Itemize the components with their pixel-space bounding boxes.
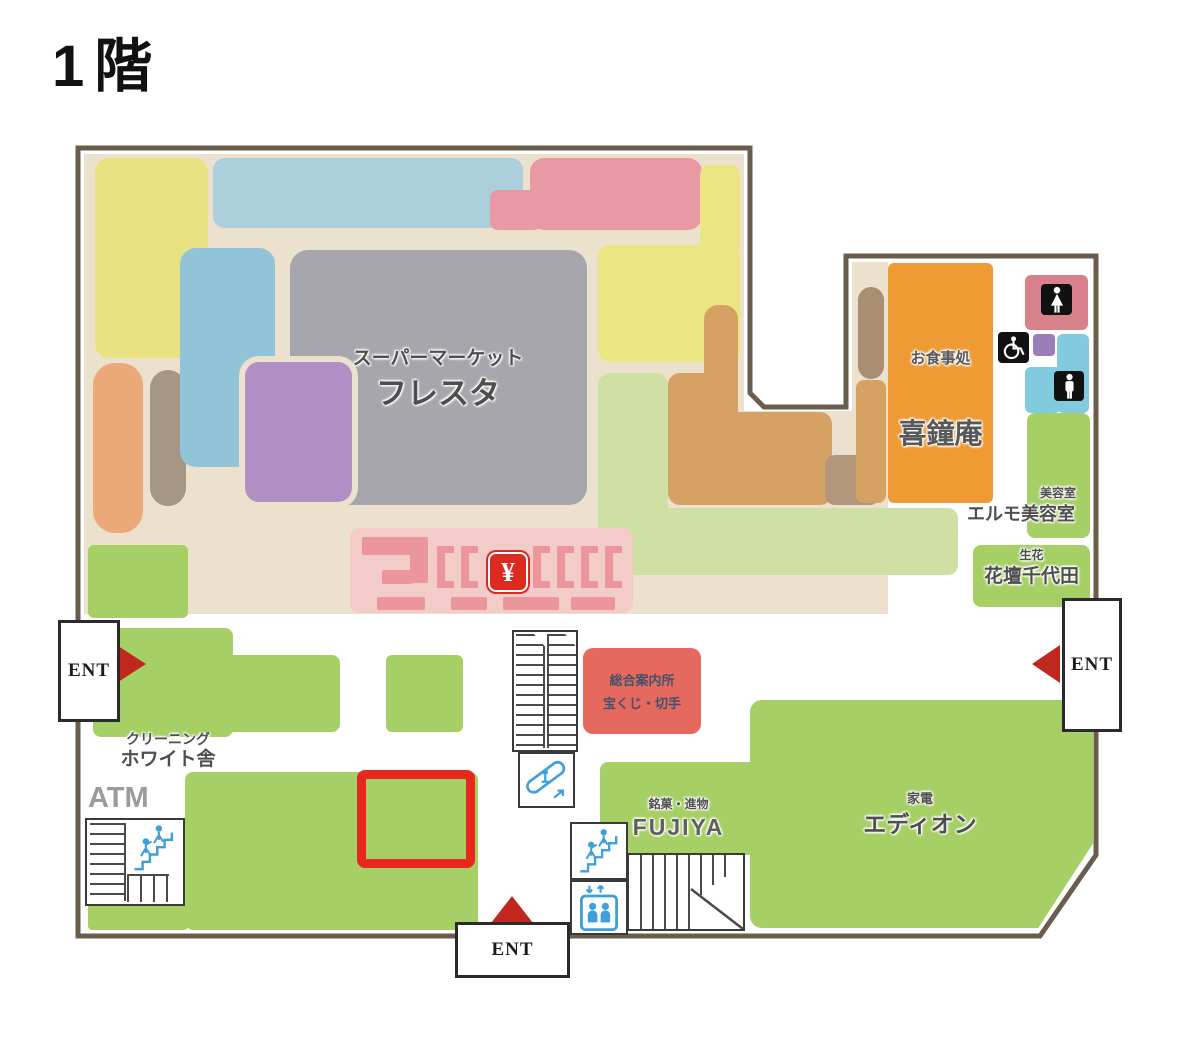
atm-label: ATM bbox=[88, 782, 198, 815]
beauty-salon-name-label: エルモ美容室 bbox=[948, 504, 1094, 525]
wheelchair-accessible-icon bbox=[998, 332, 1029, 363]
facility-block bbox=[1033, 334, 1055, 356]
staircase-icon bbox=[85, 818, 185, 906]
register-shape bbox=[605, 546, 622, 588]
supermarket-name-label: フレスタ bbox=[318, 376, 558, 412]
register-shape bbox=[461, 546, 478, 588]
florist-category-label: 生花 bbox=[973, 549, 1090, 563]
electronics-category-label: 家電 bbox=[855, 792, 985, 807]
register-shape bbox=[581, 546, 598, 588]
restaurant-name-label: 喜鐘庵 bbox=[888, 418, 993, 450]
staircase-icon bbox=[512, 630, 578, 752]
escalator-icon bbox=[518, 752, 575, 808]
sales-area-block bbox=[700, 165, 740, 255]
cleaning-category-label: クリーニング bbox=[93, 731, 243, 747]
supermarket-category-label: スーパーマーケット bbox=[318, 348, 558, 370]
staircase-icon bbox=[627, 853, 745, 931]
information-line2: 宝くじ・切手 bbox=[603, 693, 681, 712]
entrance-bottom: ENT bbox=[455, 922, 570, 978]
sales-area-block bbox=[700, 412, 832, 505]
sales-area-block bbox=[704, 305, 738, 417]
highlight-rectangle[interactable] bbox=[357, 770, 475, 868]
beauty-salon-category-label: 美容室 bbox=[1022, 487, 1094, 501]
entrance-label: ENT bbox=[491, 939, 533, 961]
stair-treads bbox=[90, 823, 126, 901]
cash-register-icon: ¥ bbox=[488, 552, 528, 592]
register-shape bbox=[557, 546, 574, 588]
stairs-up-pictogram bbox=[570, 822, 628, 880]
entrance-arrow bbox=[1032, 645, 1060, 683]
confectionery-category-label: 銘菓・進物 bbox=[600, 798, 757, 812]
cleaning-name-label: ホワイト舎 bbox=[88, 749, 248, 771]
florist-name-label: 花壇千代田 bbox=[971, 566, 1092, 588]
register-shape bbox=[437, 546, 454, 588]
floor-map: 1階 スーパーマーケット フレスタ お食事処 喜鐘庵 美容室 エ bbox=[0, 0, 1192, 1052]
register-shape bbox=[382, 570, 412, 584]
entrance-arrow bbox=[491, 896, 533, 923]
stair-treads bbox=[127, 874, 169, 902]
sales-area-block bbox=[530, 158, 702, 230]
register-shape bbox=[503, 597, 559, 610]
entrance-arrow bbox=[118, 646, 146, 682]
stairs-up-pictogram bbox=[127, 822, 181, 874]
sales-area-block bbox=[386, 655, 463, 732]
elevator-icon bbox=[570, 880, 628, 935]
sales-area-block bbox=[858, 287, 884, 379]
entrance-label: ENT bbox=[1071, 654, 1113, 676]
sales-area-block bbox=[598, 508, 958, 575]
register-shape bbox=[377, 597, 425, 610]
register-shape bbox=[410, 553, 428, 583]
sales-area-block bbox=[213, 158, 523, 228]
area-restaurant bbox=[888, 263, 993, 503]
information-booth: 総合案内所 宝くじ・切手 bbox=[583, 648, 701, 734]
electronics-name-label: エディオン bbox=[845, 811, 995, 837]
sales-area-block bbox=[93, 363, 143, 533]
sales-area-block bbox=[88, 545, 188, 618]
stair-treads bbox=[516, 634, 545, 748]
register-shape bbox=[451, 597, 487, 610]
entrance-label: ENT bbox=[68, 660, 110, 682]
information-line1: 総合案内所 bbox=[609, 670, 674, 689]
sales-area-block bbox=[88, 903, 188, 930]
yen-symbol: ¥ bbox=[501, 557, 515, 588]
entrance-right: ENT bbox=[1062, 598, 1122, 732]
register-shape bbox=[533, 546, 550, 588]
sales-area-block bbox=[856, 380, 886, 503]
women-toilet-icon bbox=[1041, 284, 1072, 315]
register-shape bbox=[571, 597, 615, 610]
sales-area-block bbox=[192, 655, 340, 732]
restaurant-category-label: お食事処 bbox=[888, 350, 993, 367]
stair-treads bbox=[547, 634, 576, 748]
men-toilet-icon bbox=[1054, 371, 1084, 401]
entrance-left: ENT bbox=[58, 620, 120, 722]
